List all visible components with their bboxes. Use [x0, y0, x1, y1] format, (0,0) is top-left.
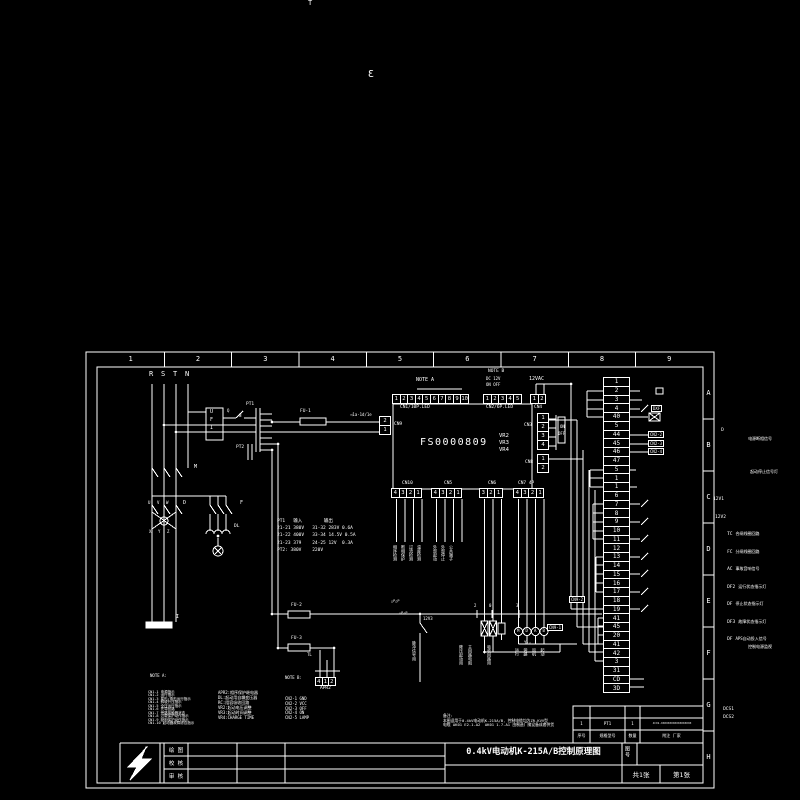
vertical-label: 旁路	[524, 648, 528, 656]
label: NOTE A	[416, 378, 434, 383]
label: DL	[234, 525, 239, 530]
label: W	[166, 501, 168, 505]
label: FU-2	[291, 604, 302, 609]
boxed-label: CN9-2	[569, 596, 585, 603]
relay-row: 控制电源监视	[668, 614, 772, 671]
label: VR4	[499, 448, 509, 454]
label: A	[534, 629, 536, 633]
parts-header-note: 附注 厂家	[640, 733, 703, 739]
label: I	[210, 426, 213, 431]
label: N	[185, 371, 189, 378]
schematic-canvas: 123456789 ABCDEFGH 12345678910 12345 12 …	[0, 0, 800, 800]
label: PT2	[236, 446, 244, 451]
zone-number: 1	[97, 352, 164, 367]
label: NOTE B:	[285, 676, 302, 680]
connector-pin: 10	[460, 394, 469, 404]
label: Y-△	[524, 641, 531, 645]
note-line: VR4:CHARGE TIME	[218, 716, 258, 721]
label: CN9	[394, 423, 402, 428]
note-b-list: CN2-1 GNDCN2-2 VCCCN2-3 OFFCN2-4 ONCN2-5…	[285, 682, 309, 721]
connector-cn8: 12	[537, 455, 549, 473]
titleblock-signature-rows: 绘 图校 核审 核	[164, 743, 188, 783]
label: 12V3	[423, 617, 433, 621]
vertical-label: 断相保护	[401, 545, 405, 561]
signature-row-label: 校 核	[164, 756, 188, 769]
label: D	[526, 629, 528, 633]
sheet-total: 共1张	[622, 765, 660, 783]
zone-number: 5	[366, 352, 433, 367]
label: OFF	[558, 432, 565, 436]
vertical-label: 降压起动用	[459, 645, 463, 665]
relay-tag: DCS2	[723, 715, 734, 720]
label: T	[308, 0, 312, 7]
zone-number: 4	[299, 352, 366, 367]
vertical-label: 运行	[515, 648, 519, 656]
label: CN1/10P.LED	[400, 406, 430, 411]
label: DC 12V	[486, 377, 500, 381]
note-a-list: CN1-1 电源指示CN1-2 运行指示CN1-3 星形/角形运行指示CN1-4…	[148, 679, 194, 725]
label: FU-1	[300, 410, 311, 415]
parts-cell-note: JCX1-XXXXXXXXXXXXXXXXXX	[641, 721, 703, 725]
connector-cn2: 12345	[484, 394, 522, 404]
connector-pin: 1	[536, 488, 545, 498]
pt-table-line: PT2: 380V 220V	[277, 549, 356, 556]
signature-row-label: 绘 图	[164, 743, 188, 756]
label: CN3	[524, 424, 532, 429]
label: F	[240, 501, 243, 506]
label: 3	[516, 604, 518, 608]
label: CN5	[444, 482, 452, 487]
label: CN7 4P	[518, 482, 534, 487]
label: △P△P	[399, 612, 407, 616]
vertical-label: 温度检测	[417, 545, 421, 561]
parts-header-index: 序号	[573, 733, 590, 739]
label: 2	[474, 604, 476, 608]
label: APR2	[320, 687, 331, 692]
zone-number: 3	[232, 352, 299, 367]
connector-apr2: 412	[316, 677, 336, 686]
parts-header-spec: 规格型号	[590, 733, 625, 739]
terminal-row: 3D	[603, 683, 630, 693]
label: M	[194, 465, 197, 470]
parts-cell-spec: PT1	[590, 721, 625, 726]
connector-pin: 5	[513, 394, 522, 404]
label: Y	[158, 530, 160, 534]
relay-desc: 控制电源监视	[748, 644, 772, 649]
connector-cn10: 4321	[392, 488, 422, 498]
label: FU-3	[291, 637, 302, 642]
label: CN2/6P.LED	[486, 406, 513, 411]
connector-pin: 1	[379, 425, 391, 435]
label: CN8	[525, 461, 533, 466]
zone-number: 9	[636, 352, 703, 367]
label: NOTE B	[488, 370, 504, 375]
label: D	[183, 501, 186, 506]
label: V	[157, 501, 159, 505]
label: Q	[227, 409, 229, 413]
label: F	[210, 418, 213, 423]
signature-row-label: 审 核	[164, 770, 188, 783]
vertical-label: 起动	[541, 648, 545, 656]
remarks: 备注:本图适用于0.4kV电动机K-215A/B, 控制电缆均为ZR-KVV型电…	[443, 699, 554, 728]
label: ◁1a·1d/1e	[350, 413, 372, 417]
vertical-label: 外部停止	[441, 545, 445, 561]
zone-number: 7	[501, 352, 568, 367]
label: CN6	[488, 482, 496, 487]
label: U	[210, 410, 213, 415]
sheet-number-label: 图号	[624, 746, 631, 758]
label: N	[239, 414, 241, 418]
label: △P△P	[391, 600, 399, 604]
connector-pin: 1	[494, 488, 503, 498]
remark-line: 电缆 AK01 E2.1-A2 AK01 1.7-A1 由制造厂随设备成套供货	[443, 723, 554, 728]
board-model-number: FS0000809	[420, 437, 488, 448]
label: U	[148, 501, 150, 505]
label: ON OFF	[486, 383, 500, 387]
drawing-title: 0.4kV电动机K-215A/B控制原理图	[447, 745, 620, 757]
label: X	[149, 530, 151, 534]
label: CN10	[402, 482, 413, 487]
vertical-label: 脉冲信号用	[412, 641, 416, 661]
label: TL	[307, 653, 312, 657]
note-line: CN1-10 起动器故障综合指示	[148, 722, 194, 725]
pt-ratio-table: PT1 输入 输出21-21 380V 31-32 283V 0.6A21-22…	[277, 505, 356, 556]
zone-number: 8	[568, 352, 635, 367]
label: T	[173, 371, 177, 378]
zone-number: 6	[434, 352, 501, 367]
connector-cn9: 21	[379, 417, 391, 435]
vertical-label: 公共端子	[449, 545, 453, 561]
label: 12VAC	[529, 377, 544, 382]
vertical-label: 吸收回路用	[487, 645, 491, 665]
connector-cn1: 12345678910	[393, 394, 469, 404]
zone-number: 2	[164, 352, 231, 367]
vertical-label: 过流检测	[409, 545, 413, 561]
connector-pin: 2	[328, 677, 336, 686]
terminal-strip: 1234405444546475116789101112131415161718…	[603, 378, 630, 693]
connector-cn7: 4321	[514, 488, 544, 498]
parts-cell-index: 1	[573, 721, 590, 726]
label: VR2	[499, 434, 509, 440]
connector-pin: 4	[537, 440, 549, 450]
label: Z	[167, 530, 169, 534]
boxed-label: CN9-1	[547, 624, 563, 631]
label: VR3	[499, 441, 509, 447]
connector-cn6: 321	[480, 488, 503, 498]
parts-header-qty: 数量	[625, 733, 640, 739]
label: PT1	[246, 403, 254, 408]
label: 0	[489, 604, 491, 608]
connector-pin: 2	[538, 394, 547, 404]
connector-cn5: 4321	[432, 488, 462, 498]
vertical-label: 相序检测	[393, 545, 397, 561]
connector-cn4: 12	[531, 394, 546, 404]
label: CN4	[534, 406, 542, 411]
parts-cell-qty: 1	[625, 721, 640, 726]
label: M	[517, 629, 519, 633]
vertical-label: 外部起动	[433, 545, 437, 561]
connector-pin: 2	[537, 463, 549, 473]
vertical-label: 主回路电阻	[468, 645, 472, 665]
label: B	[543, 629, 545, 633]
connector-pin: 1	[454, 488, 463, 498]
label: Ɛ	[368, 70, 374, 80]
connector-cn3: 1234	[537, 414, 549, 450]
label: I	[176, 615, 179, 620]
relay-desc: 起动停止信号灯	[750, 469, 778, 474]
component-notes: APR2:相序保护继电器DL:起动用自耦变压器RC:阻容吸收回路VR2:起动电压…	[218, 676, 258, 722]
sheet-page: 第1张	[660, 765, 703, 783]
note-line: CN2-5 LAMP	[285, 716, 309, 721]
label: S	[161, 371, 165, 378]
zone-number-ruler: 123456789	[97, 352, 703, 367]
connector-pin: 1	[414, 488, 423, 498]
label: R	[149, 371, 153, 378]
label: ON	[560, 425, 565, 429]
label: NOTE A:	[150, 674, 167, 678]
vertical-label: 风机	[532, 648, 536, 656]
